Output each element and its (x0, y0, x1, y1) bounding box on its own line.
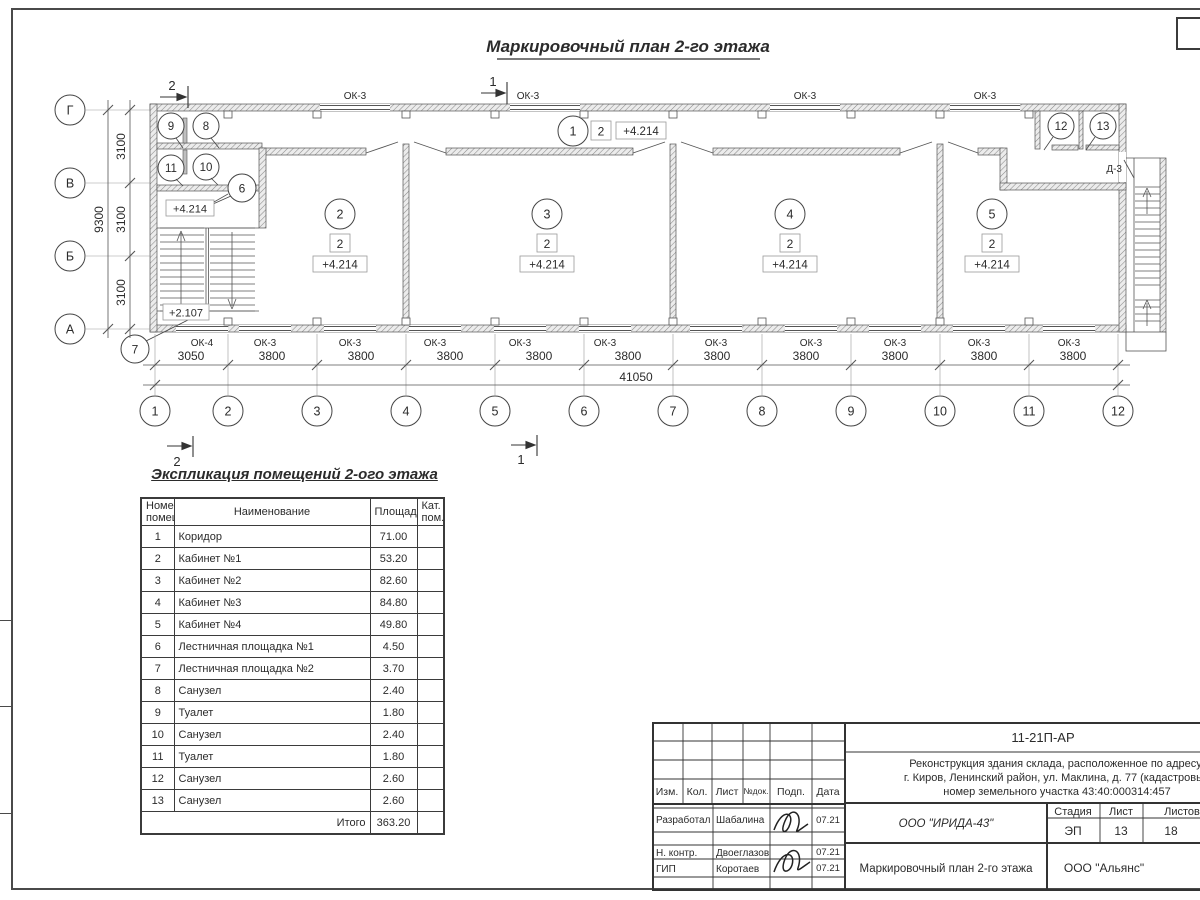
dim-label: 3800 (348, 349, 375, 363)
tb-date: 07.21 (816, 863, 840, 874)
window-label: ОК-3 (794, 91, 817, 102)
tb-org: ООО "ИРИДА-43" (899, 818, 995, 830)
table-row: 5Кабинет №449.80 (141, 614, 444, 636)
table-row: 9Туалет1.80 (141, 702, 444, 724)
window-label: ОК-3 (339, 338, 362, 349)
window-label: ОК-3 (509, 338, 532, 349)
dimension-labels: 3050 3800 3800 3800 3800 3800 3800 3800 … (178, 349, 1087, 384)
tb-role: Разработал (656, 814, 711, 826)
window-label: ОК-3 (424, 338, 447, 349)
tb-col-list: Лист (716, 786, 739, 798)
dim-label: 3800 (971, 349, 998, 363)
tb-desc-line3: номер земельного участка 43:40:000314:45… (943, 786, 1171, 798)
dim-label: 3050 (178, 349, 205, 363)
window-label: ОК-3 (1058, 338, 1081, 349)
axis-label: 2 (225, 405, 232, 419)
category-mark: 2 (989, 237, 996, 251)
room-marker-3: 3 2 +4.214 (520, 199, 574, 272)
tb-org2: ООО "Альянс" (1064, 861, 1144, 875)
table-total-row: Итого363.20 (141, 812, 444, 835)
axis-bubbles-left (55, 95, 85, 344)
dim-label: 3800 (437, 349, 464, 363)
door-d3: Д-3 (1106, 152, 1134, 182)
axis-bubbles-bottom (140, 396, 1133, 426)
dim-label: 3800 (259, 349, 286, 363)
tb-col-ndok: №док. (744, 786, 769, 796)
axis-labels-bottom: 1 2 3 4 5 6 7 8 9 10 11 12 (152, 405, 1125, 419)
room-number: 4 (787, 208, 794, 222)
tb-drawing-title: Маркировочный план 2-го этажа (860, 863, 1034, 875)
tb-col-kol: Кол. (687, 786, 708, 798)
title-block: Изм. Кол. Лист №док. Подп. Дата Разработ… (652, 722, 1200, 891)
window-label: ОК-3 (884, 338, 907, 349)
tb-date: 07.21 (816, 847, 840, 858)
dim-label: 3800 (793, 349, 820, 363)
room-number: 10 (200, 162, 213, 174)
table-row: 8Санузел2.40 (141, 680, 444, 702)
total-label: Итого (141, 812, 370, 835)
frame-tick (0, 813, 11, 814)
axis-label: 12 (1111, 405, 1125, 419)
axis-label: 6 (581, 405, 588, 419)
signature-strokes (774, 812, 810, 872)
tb-col-data: Дата (816, 786, 839, 798)
elevation-mark: +4.214 (322, 260, 358, 272)
dim-label: 3800 (526, 349, 553, 363)
elevation-mark: +4.214 (173, 204, 207, 216)
window-label: ОК-3 (968, 338, 991, 349)
window-label: ОК-3 (800, 338, 823, 349)
door-label: Д-3 (1106, 164, 1122, 175)
window-label: ОК-3 (974, 91, 997, 102)
table-row: 3Кабинет №282.60 (141, 570, 444, 592)
col-header-area: Площадь (370, 498, 417, 526)
room-number: 12 (1055, 121, 1068, 133)
col-header-cat: Кат.пом. (417, 498, 444, 526)
tb-name: Коротаев (716, 864, 759, 875)
elevation-mark: +2.107 (169, 308, 203, 320)
drawing-sheet: Маркировочный план 2-го этажа (0, 0, 1200, 900)
floor-plan: Маркировочный план 2-го этажа (0, 0, 1200, 470)
room-marker-5: 5 2 +4.214 (965, 199, 1019, 272)
dim-label: 3100 (114, 279, 128, 306)
tb-sheet-value: 13 (1114, 824, 1128, 838)
elevation-left: +4.214 +2.107 (163, 194, 228, 320)
table-row: 10Санузел2.40 (141, 724, 444, 746)
tb-sheets-value: 18 (1164, 824, 1178, 838)
axis-label: 5 (492, 405, 499, 419)
axis-label: 11 (1023, 405, 1036, 419)
room-number: 7 (132, 343, 139, 357)
table-row: 13Санузел2.60 (141, 790, 444, 812)
dim-label: 3800 (1060, 349, 1087, 363)
frame-tick (0, 706, 11, 707)
axis-label: Г (67, 104, 74, 118)
axis-label: 3 (314, 405, 321, 419)
tb-desc-line2: г. Киров, Ленинский район, ул. Маклина, … (904, 772, 1200, 784)
room-number: 1 (570, 125, 577, 139)
window-label: ОК-3 (705, 338, 728, 349)
dim-total-label: 9300 (92, 206, 106, 233)
room-marker-4: 4 2 +4.214 (763, 199, 817, 272)
category-mark: 2 (337, 237, 344, 251)
elevation-mark: +4.214 (772, 260, 808, 272)
axis-label: В (66, 177, 74, 191)
section-label: 2 (168, 78, 175, 93)
schedule-table: Номерпомещ. Наименование Площадь Кат.пом… (140, 497, 445, 835)
table-row: 11Туалет1.80 (141, 746, 444, 768)
tb-name: Шабалина (716, 814, 765, 826)
table-row: 1Коридор71.00 (141, 526, 444, 548)
room-number: 2 (337, 208, 344, 222)
elevation-mark: +4.214 (529, 260, 565, 272)
tb-date: 07.21 (816, 815, 840, 826)
tb-desc-line1: Реконструкция здания склада, расположенн… (909, 758, 1200, 770)
axis-label: 9 (848, 405, 855, 419)
schedule-title: Экспликация помещений 2-ого этажа (146, 466, 443, 483)
axis-label: 10 (933, 405, 947, 419)
category-mark: 2 (598, 125, 605, 139)
tb-col-podp: Подп. (777, 786, 805, 798)
axis-label: 1 (152, 405, 159, 419)
tb-stage-label: Стадия (1054, 806, 1092, 818)
tb-stage-value: ЭП (1064, 824, 1081, 838)
category-mark: 2 (787, 237, 794, 251)
dim-label: 3800 (882, 349, 909, 363)
tb-sheets-label: Листов (1164, 806, 1200, 818)
tb-name: Двоеглазов (716, 848, 769, 859)
window-label: ОК-3 (517, 91, 540, 102)
plan-title: Маркировочный план 2-го этажа (486, 37, 770, 56)
room-number: 5 (989, 208, 996, 222)
room-schedule: Экспликация помещений 2-ого этажа Номерп… (140, 466, 443, 835)
room-marker-2: 2 2 +4.214 (313, 199, 367, 272)
total-value: 363.20 (370, 812, 417, 835)
table-header-row: Номерпомещ. Наименование Площадь Кат.пом… (141, 498, 444, 526)
section-label: 1 (517, 452, 524, 467)
dim-label: 3800 (704, 349, 731, 363)
room-number: 13 (1097, 121, 1110, 133)
tb-role: ГИП (656, 864, 676, 875)
elevation-mark: +4.214 (623, 126, 659, 138)
room-number: 8 (203, 121, 209, 133)
axis-label: 4 (403, 405, 410, 419)
room-marker-1: 1 2 +4.214 (558, 116, 666, 146)
window-label: ОК-3 (594, 338, 617, 349)
room-number: 3 (544, 208, 551, 222)
room-number: 9 (168, 121, 174, 133)
category-mark: 2 (544, 237, 551, 251)
col-header-name: Наименование (174, 498, 370, 526)
tb-sheet-label: Лист (1109, 806, 1133, 818)
table-row: 6Лестничная площадка №14.50 (141, 636, 444, 658)
dim-label: 3100 (114, 133, 128, 160)
stair-left (157, 228, 259, 311)
tb-doc-number: 11-21П-АР (1011, 730, 1074, 745)
window-label: ОК-4 (191, 338, 214, 349)
window-label: ОК-3 (344, 91, 367, 102)
tb-role: Н. контр. (656, 848, 697, 859)
table-row: 2Кабинет №153.20 (141, 548, 444, 570)
axis-label: 8 (759, 405, 766, 419)
col-header-number: Номерпомещ. (141, 498, 174, 526)
table-row: 7Лестничная площадка №23.70 (141, 658, 444, 680)
axis-label: Б (66, 250, 74, 264)
table-row: 12Санузел2.60 (141, 768, 444, 790)
table-row: 4Кабинет №384.80 (141, 592, 444, 614)
elevation-mark: +4.214 (974, 260, 1010, 272)
window-label: ОК-3 (254, 338, 277, 349)
room-number: 11 (165, 163, 177, 175)
section-label: 1 (489, 74, 496, 89)
dim-label: 3100 (114, 206, 128, 233)
axis-label: 7 (670, 405, 677, 419)
tb-col-izm: Изм. (656, 786, 679, 798)
dim-total-label: 41050 (619, 370, 653, 384)
dim-label: 3800 (615, 349, 642, 363)
room-number: 6 (239, 182, 246, 196)
frame-tick (0, 620, 11, 621)
axis-label: А (66, 323, 75, 337)
